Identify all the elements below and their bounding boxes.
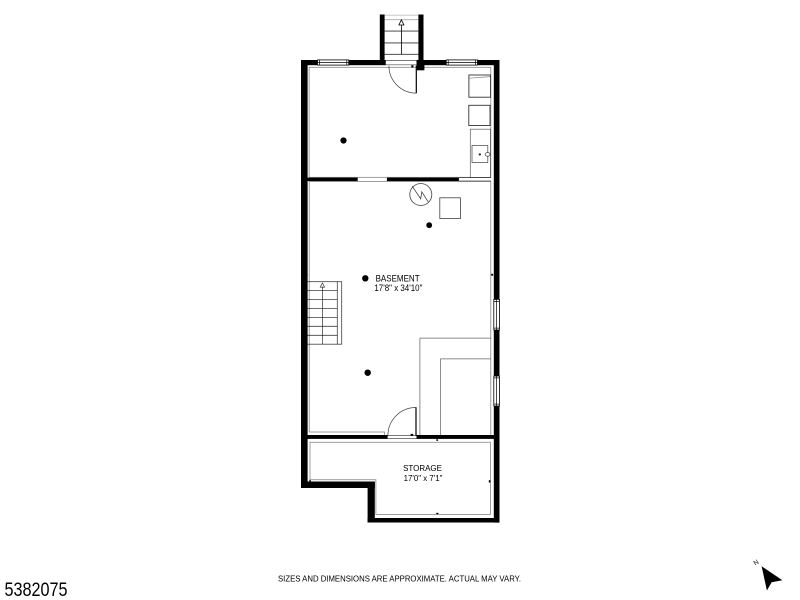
- svg-text:5382075: 5382075: [5, 580, 68, 600]
- svg-text:17'8" x 34'10": 17'8" x 34'10": [374, 282, 422, 293]
- svg-text:17'0" x 7'1": 17'0" x 7'1": [404, 473, 443, 483]
- svg-text:SIZES AND DIMENSIONS ARE APPRO: SIZES AND DIMENSIONS ARE APPROXIMATE. AC…: [278, 574, 521, 584]
- svg-text:STORAGE: STORAGE: [403, 463, 442, 473]
